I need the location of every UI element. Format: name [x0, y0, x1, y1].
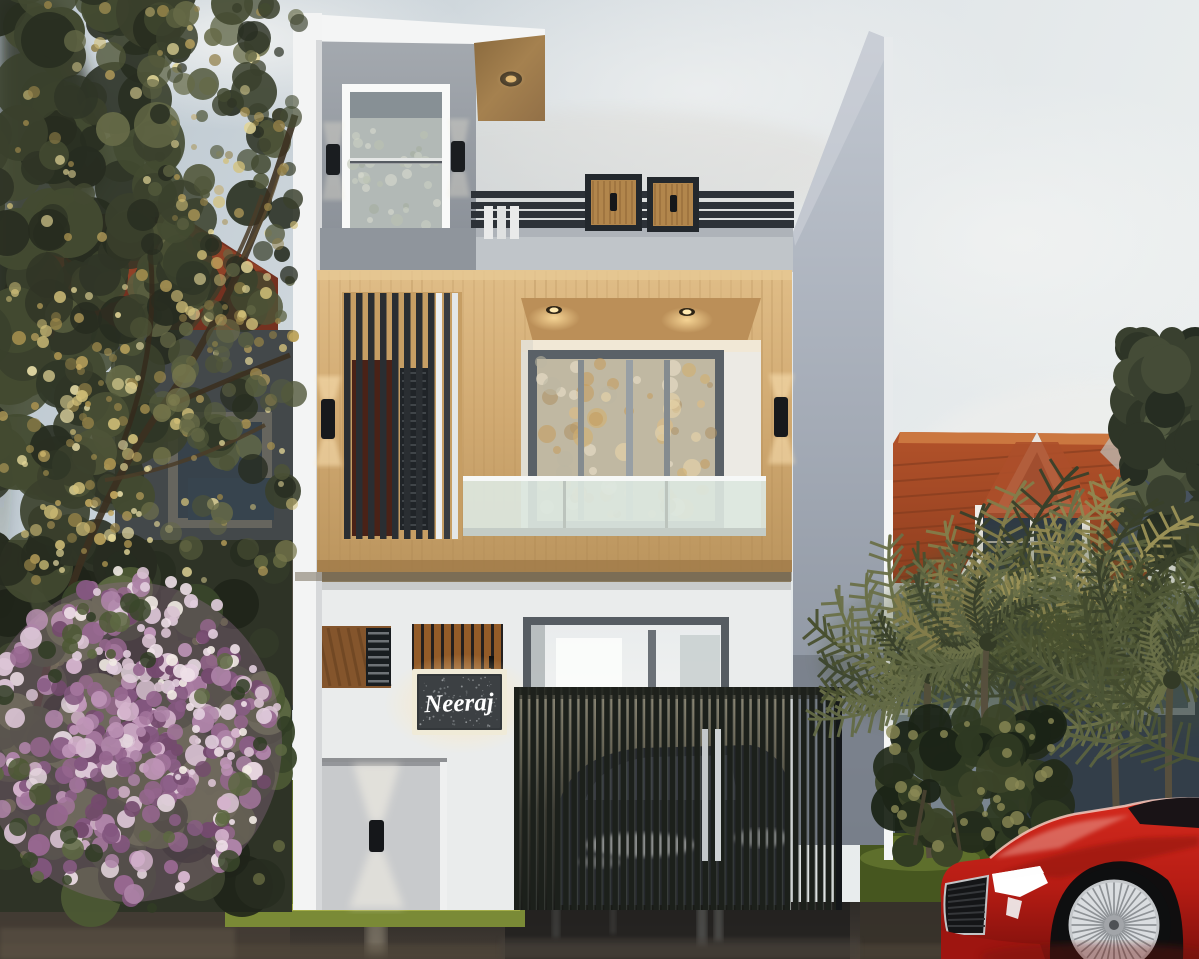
svg-text:Neeraj: Neeraj: [423, 689, 495, 718]
